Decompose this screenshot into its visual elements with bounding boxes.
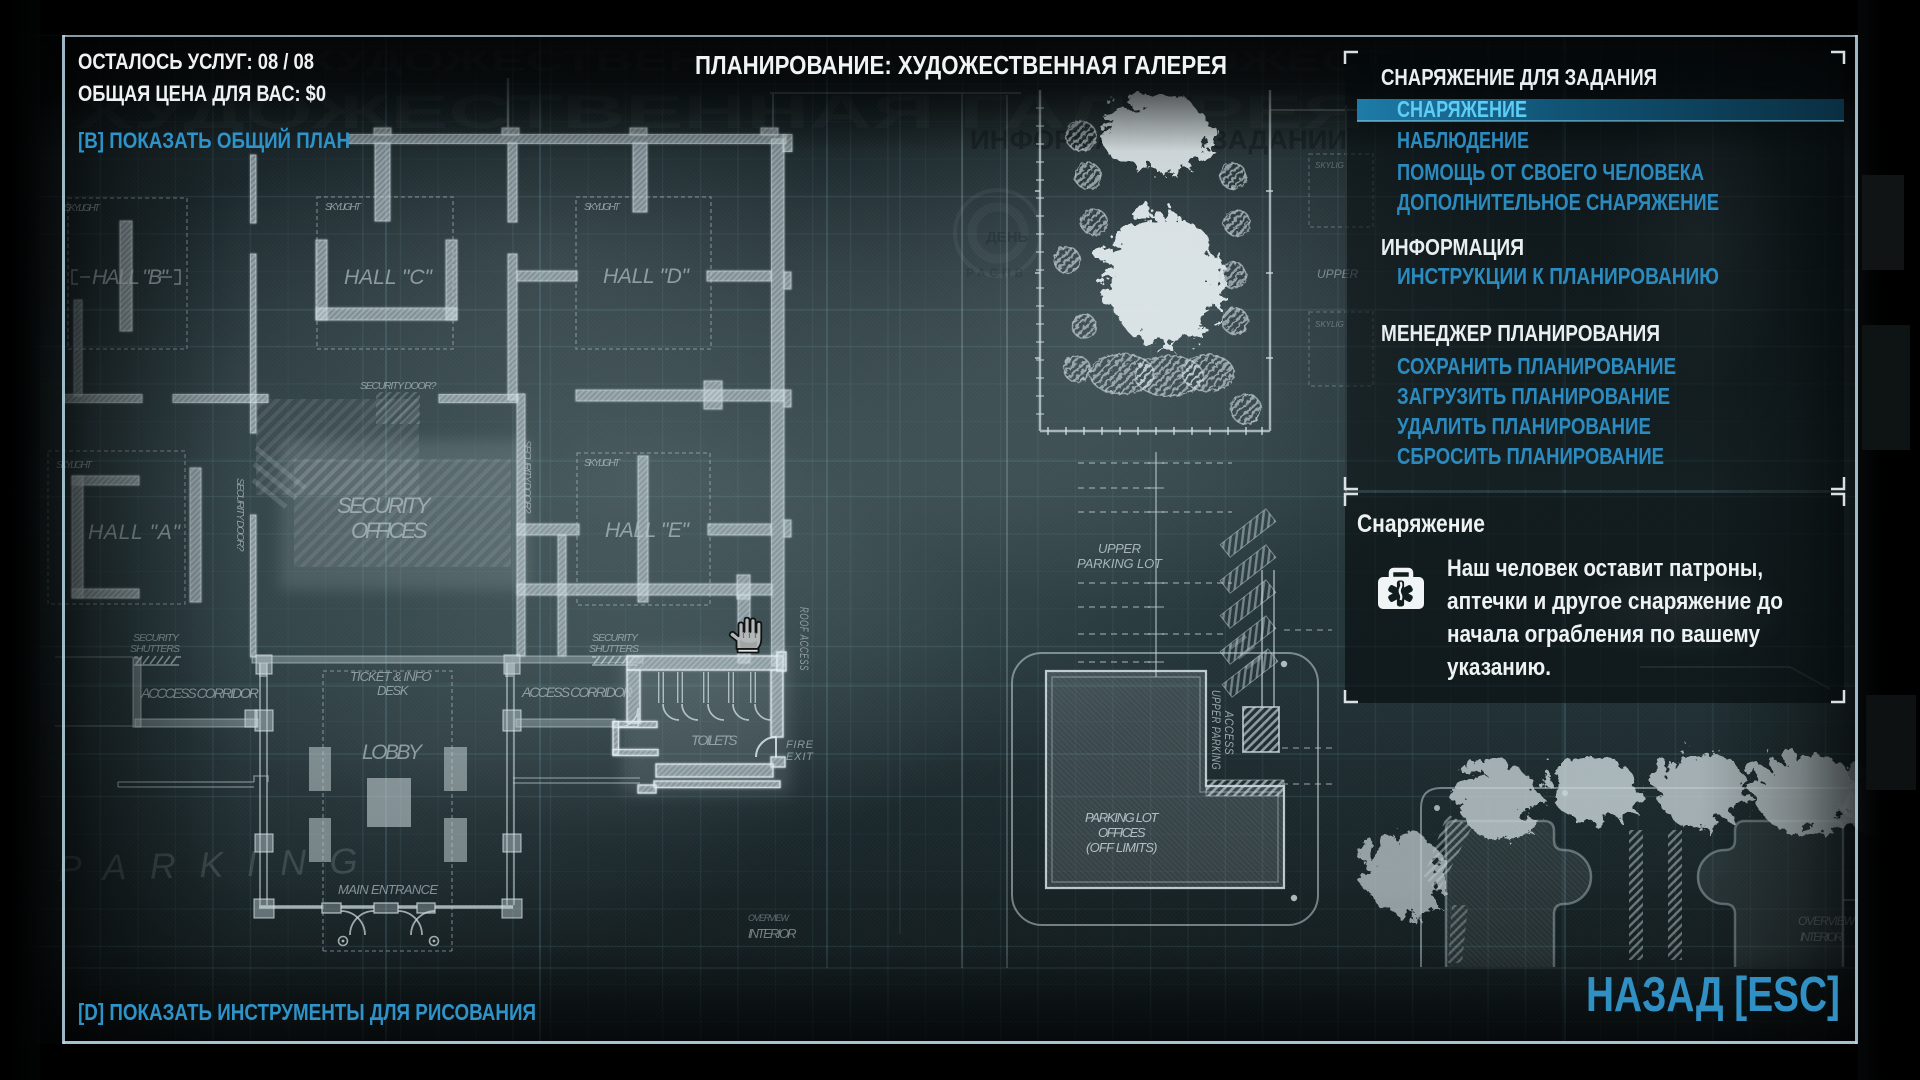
svg-text:Наш человек оставит патроны,: Наш человек оставит патроны,	[1447, 555, 1763, 582]
svg-text:ИНФОРМАЦИЯ: ИНФОРМАЦИЯ	[1381, 234, 1524, 260]
svg-text:МЕНЕДЖЕР ПЛАНИРОВАНИЯ: МЕНЕДЖЕР ПЛАНИРОВАНИЯ	[1381, 320, 1660, 346]
svg-text:НАЗАД [ESC]: НАЗАД [ESC]	[1586, 968, 1840, 1022]
svg-text:[B] ПОКАЗАТЬ ОБЩИЙ ПЛАН: [B] ПОКАЗАТЬ ОБЩИЙ ПЛАН	[78, 128, 350, 153]
svg-text:ОСТАЛОСЬ УСЛУГ: 08 / 08: ОСТАЛОСЬ УСЛУГ: 08 / 08	[78, 49, 314, 74]
svg-text:Снаряжение: Снаряжение	[1357, 510, 1485, 538]
svg-text:ПЛАНИРОВАНИЕ: ХУДОЖЕСТВЕННАЯ Г: ПЛАНИРОВАНИЕ: ХУДОЖЕСТВЕННАЯ ГАЛЕРЕЯ	[695, 50, 1227, 80]
svg-text:УДАЛИТЬ ПЛАНИРОВАНИЕ: УДАЛИТЬ ПЛАНИРОВАНИЕ	[1397, 413, 1651, 439]
svg-text:начала ограбления по вашему: начала ограбления по вашему	[1447, 621, 1761, 648]
svg-text:[D] ПОКАЗАТЬ ИНСТРУМЕНТЫ ДЛЯ Р: [D] ПОКАЗАТЬ ИНСТРУМЕНТЫ ДЛЯ РИСОВАНИЯ	[78, 999, 536, 1025]
svg-text:НАБЛЮДЕНИЕ: НАБЛЮДЕНИЕ	[1397, 127, 1529, 153]
svg-text:ПОМОЩЬ ОТ СВОЕГО ЧЕЛОВЕКА: ПОМОЩЬ ОТ СВОЕГО ЧЕЛОВЕКА	[1397, 159, 1704, 185]
svg-text:ДОПОЛНИТЕЛЬНОЕ СНАРЯЖЕНИЕ: ДОПОЛНИТЕЛЬНОЕ СНАРЯЖЕНИЕ	[1397, 189, 1719, 215]
svg-text:СНАРЯЖЕНИЕ ДЛЯ ЗАДАНИЯ: СНАРЯЖЕНИЕ ДЛЯ ЗАДАНИЯ	[1381, 64, 1657, 90]
svg-text:ИНСТРУКЦИИ К ПЛАНИРОВАНИЮ: ИНСТРУКЦИИ К ПЛАНИРОВАНИЮ	[1397, 263, 1719, 289]
svg-text:ЗАГРУЗИТЬ ПЛАНИРОВАНИЕ: ЗАГРУЗИТЬ ПЛАНИРОВАНИЕ	[1397, 383, 1670, 409]
svg-text:указанию.: указанию.	[1447, 654, 1551, 681]
svg-text:аптечки и другое снаряжение до: аптечки и другое снаряжение до	[1447, 588, 1783, 615]
svg-text:СОХРАНИТЬ ПЛАНИРОВАНИЕ: СОХРАНИТЬ ПЛАНИРОВАНИЕ	[1397, 353, 1676, 379]
svg-text:СБРОСИТЬ ПЛАНИРОВАНИЕ: СБРОСИТЬ ПЛАНИРОВАНИЕ	[1397, 443, 1664, 469]
svg-text:ОБЩАЯ ЦЕНА ДЛЯ ВАС: $0: ОБЩАЯ ЦЕНА ДЛЯ ВАС: $0	[78, 81, 326, 106]
svg-text:СНАРЯЖЕНИЕ: СНАРЯЖЕНИЕ	[1397, 96, 1527, 122]
